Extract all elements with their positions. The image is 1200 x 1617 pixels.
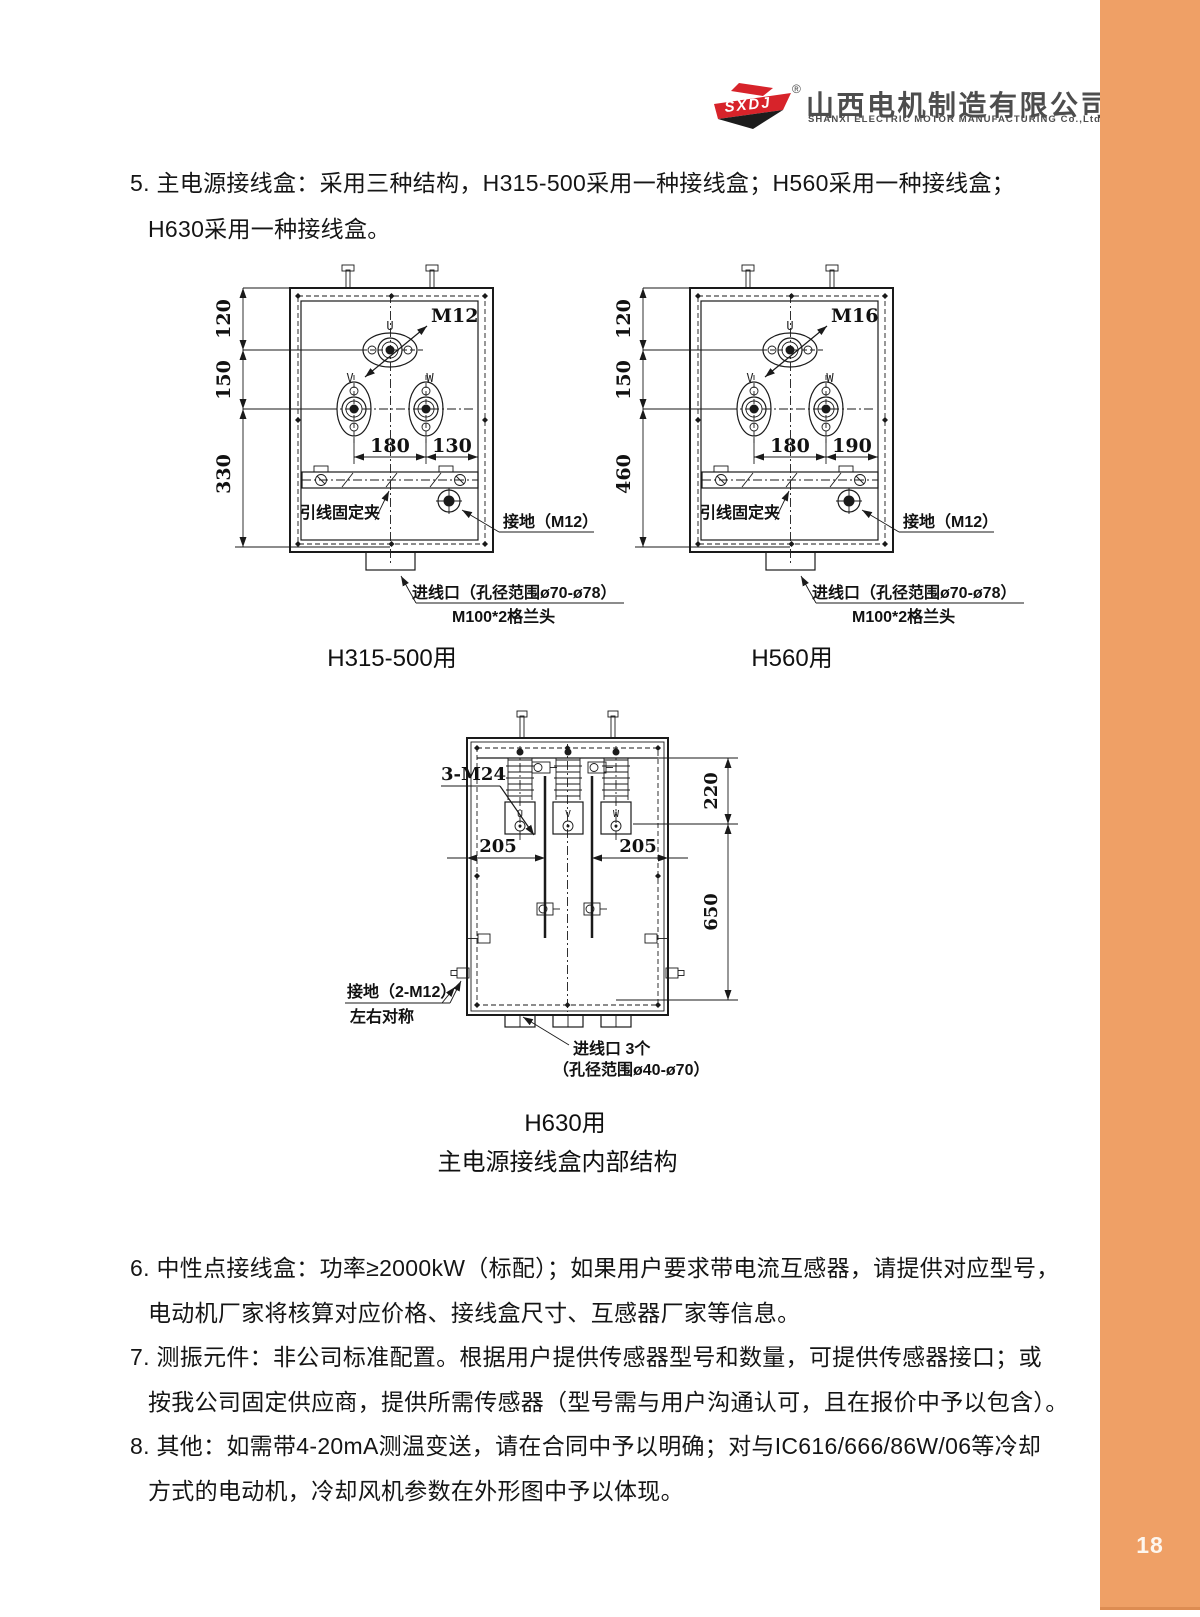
note-item5-line1: 5. 主电源接线盒：采用三种结构，H315-500采用一种接线盒；H560采用一…: [130, 168, 1015, 198]
company-name-en: SHANXI ELECTRIC MOTOR MANUFACTURING Co.,…: [808, 114, 1105, 125]
terminal-w-label: W: [826, 371, 834, 385]
terminal-v: V: [337, 371, 371, 443]
terminal-w-label: W: [426, 371, 434, 385]
inlet-label: 进线口（孔径范围ø70-ø78）: [412, 583, 616, 602]
cover-bolt: [608, 711, 618, 738]
caption-h560: H560用: [572, 638, 1012, 673]
cover-bolt: [342, 265, 354, 288]
ground-label-line2: 左右对称: [349, 1007, 414, 1026]
dim-190: 190: [832, 435, 872, 457]
insulator-u: U: [505, 746, 535, 840]
inlet-label-line2: （孔径范围ø40-ø70）: [553, 1060, 709, 1079]
figure-h630: U V W: [320, 700, 780, 1100]
dim-460: 460: [613, 454, 635, 494]
dim-130: 130: [432, 435, 472, 457]
terminal-v-label: V: [746, 371, 753, 385]
callout-ground: 接地（2-M12） 左右对称: [345, 981, 461, 1026]
lead-clamp-bar: [302, 466, 478, 488]
note-item6-line1: 6. 中性点接线盒：功率≥2000kW（标配）；如果用户要求带电流互感器，请提供…: [130, 1253, 1060, 1283]
figure-h315-500: U V W: [190, 250, 630, 670]
terminal-w-label: W: [613, 809, 620, 820]
dim-650: 650: [701, 893, 722, 931]
page-edge-band: 18: [1100, 0, 1200, 1610]
ground-label: 接地（M12）: [903, 512, 998, 531]
dim-150: 150: [613, 360, 635, 400]
ground-screw: [436, 488, 462, 514]
cover-bolt: [517, 711, 527, 738]
manual-page: { "page": { "number": "18", "accent_colo…: [0, 0, 1200, 1617]
inlet-label: 进线口（孔径范围ø70-ø78）: [812, 583, 1016, 602]
insulator-w: W: [601, 746, 631, 840]
ground-screw: [836, 488, 862, 514]
insulator-v: V: [553, 749, 583, 835]
caption-h630: H630用: [330, 1103, 800, 1138]
callout-ground: 接地（M12）: [462, 510, 598, 532]
dim-150: 150: [213, 360, 235, 400]
terminal-u-label: U: [386, 319, 393, 333]
gland-label: M100*2格兰头: [852, 607, 955, 626]
inlet-label-line1: 进线口 3个: [573, 1039, 651, 1058]
figure-h560: U V W: [590, 250, 1030, 670]
callout-ground: 接地（M12）: [862, 510, 998, 532]
terminal-thread-label: M12: [431, 305, 478, 327]
note-item8-line2: 方式的电动机，冷却风机参数在外形图中予以体现。: [148, 1476, 684, 1506]
note-item7-line2: 按我公司固定供应商，提供所需传感器（型号需与用户沟通认可，且在报价中予以包含）。: [148, 1387, 1069, 1417]
ground-label-line1: 接地（2-M12）: [347, 982, 456, 1001]
terminal-u: U: [754, 319, 826, 367]
terminal-v-label: V: [346, 371, 353, 385]
figure-group-caption: 主电源接线盒内部结构: [320, 1142, 795, 1177]
lead-clamp-bar: [702, 466, 878, 488]
dim-205-left: 205: [479, 836, 517, 857]
gland-label: M100*2格兰头: [452, 607, 555, 626]
page-number: 18: [1100, 1532, 1200, 1559]
dim-330: 330: [213, 454, 235, 494]
cover-bolt: [742, 265, 754, 288]
caption-h315-500: H315-500用: [172, 638, 612, 673]
note-item8-line1: 8. 其他：如需带4-20mA测温变送，请在合同中予以明确；对与IC616/66…: [130, 1431, 1041, 1461]
registered-mark: ®: [792, 82, 801, 96]
stud-label: 3-M24: [441, 764, 506, 785]
dim-180: 180: [370, 435, 410, 457]
dim-120: 120: [613, 299, 635, 339]
conductor-rods: [532, 762, 613, 938]
ground-label: 接地（M12）: [503, 512, 598, 531]
clamp-label: 引线固定夹: [700, 503, 780, 522]
terminal-v: V: [737, 371, 771, 443]
dim-120: 120: [213, 299, 235, 339]
cover-bolt: [426, 265, 438, 288]
note-item7-line1: 7. 测振元件：非公司标准配置。根据用户提供传感器型号和数量，可提供传感器接口；…: [130, 1342, 1042, 1372]
note-item6-line2: 电动机厂家将核算对应价格、接线盒尺寸、互感器厂家等信息。: [148, 1298, 800, 1328]
cover-bolt: [826, 265, 838, 288]
callout-clamp: 引线固定夹: [700, 491, 789, 522]
dim-220: 220: [701, 772, 722, 810]
terminal-u-label: U: [786, 319, 793, 333]
terminal-w: W: [409, 371, 443, 443]
dim-205-right: 205: [619, 836, 657, 857]
note-item5-line2: H630采用一种接线盒。: [148, 214, 391, 244]
logo-icon: SXDJ: [711, 80, 795, 132]
callout-inlet: 进线口（孔径范围ø70-ø78） M100*2格兰头: [801, 576, 1024, 626]
terminal-v-label: V: [565, 809, 571, 820]
clamp-label: 引线固定夹: [300, 503, 380, 522]
terminal-w: W: [809, 371, 843, 443]
terminal-u: U: [354, 319, 426, 367]
terminal-thread-label: M16: [831, 305, 878, 327]
callout-clamp: 引线固定夹: [300, 491, 389, 522]
dim-180: 180: [770, 435, 810, 457]
cable-entry-tabs: [505, 1015, 631, 1027]
